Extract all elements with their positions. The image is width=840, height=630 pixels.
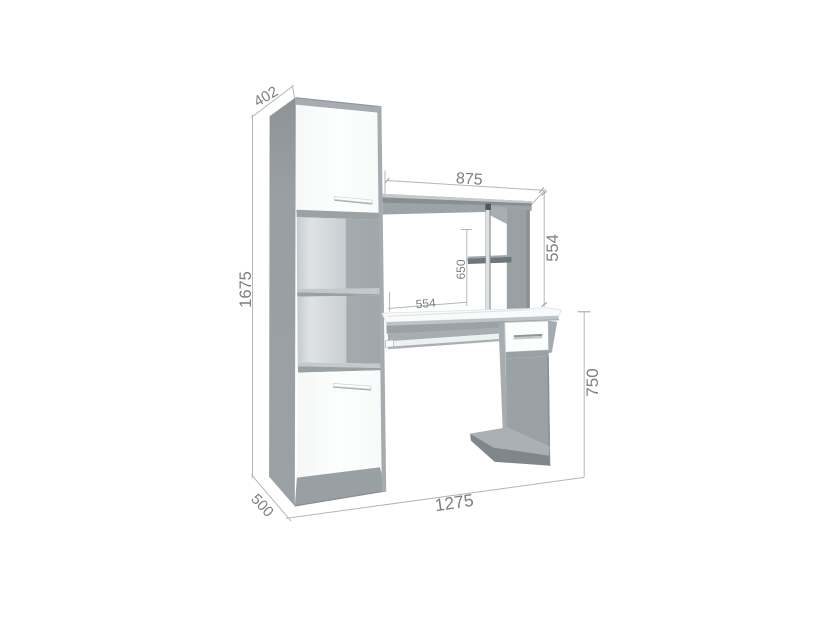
svg-text:554: 554 [415, 296, 436, 312]
svg-text:750: 750 [583, 368, 602, 396]
svg-text:650: 650 [454, 259, 468, 279]
svg-text:875: 875 [455, 170, 483, 189]
svg-text:1675: 1675 [237, 271, 255, 308]
svg-text:554: 554 [544, 234, 562, 262]
